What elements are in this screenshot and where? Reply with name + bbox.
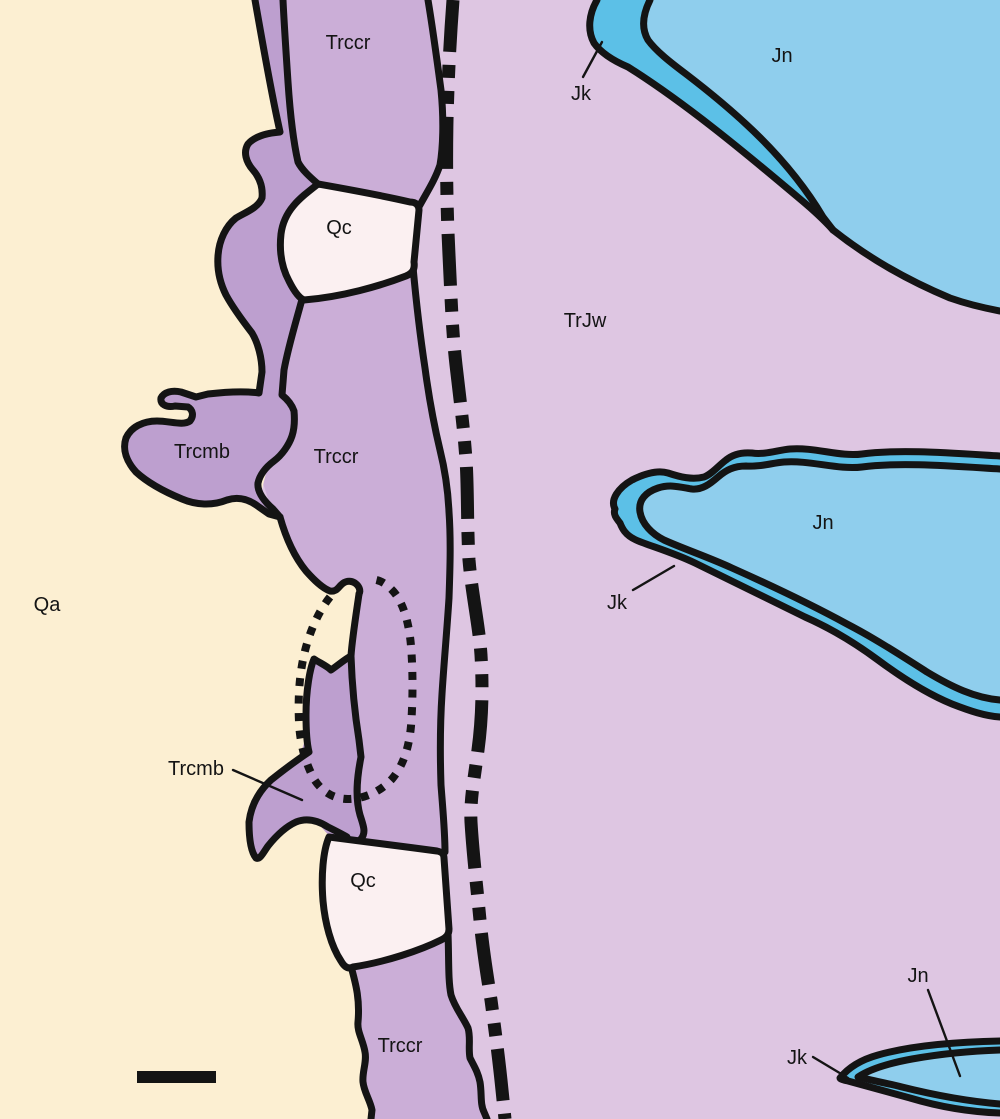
unit-qc-upper-region: [280, 184, 419, 300]
label-trjw: TrJw: [564, 310, 607, 332]
scale-bar: [137, 1071, 216, 1083]
label-jn-mid: Jn: [812, 512, 833, 534]
label-qc-upper: Qc: [326, 217, 352, 239]
label-trccr-mid: Trccr: [314, 446, 359, 468]
label-trccr-bottom: Trccr: [378, 1035, 423, 1057]
label-jk-mid: Jk: [607, 592, 628, 614]
label-jk-bottom: Jk: [787, 1047, 808, 1069]
label-jk-top: Jk: [571, 83, 592, 105]
label-trcmb-lower: Trcmb: [168, 758, 224, 780]
geologic-map: Trccr Jn Jk Qc TrJw Trcmb Trccr Qa Jn Jk…: [0, 0, 1000, 1119]
label-qa: Qa: [34, 594, 62, 616]
label-jn-top: Jn: [771, 45, 792, 67]
label-trcmb-upper: Trcmb: [174, 441, 230, 463]
label-jn-bottom: Jn: [907, 965, 928, 987]
label-trccr-top: Trccr: [326, 32, 371, 54]
unit-qc-lower-region: [322, 837, 449, 968]
label-qc-lower: Qc: [350, 870, 376, 892]
map-canvas: Trccr Jn Jk Qc TrJw Trcmb Trccr Qa Jn Jk…: [0, 0, 1000, 1119]
